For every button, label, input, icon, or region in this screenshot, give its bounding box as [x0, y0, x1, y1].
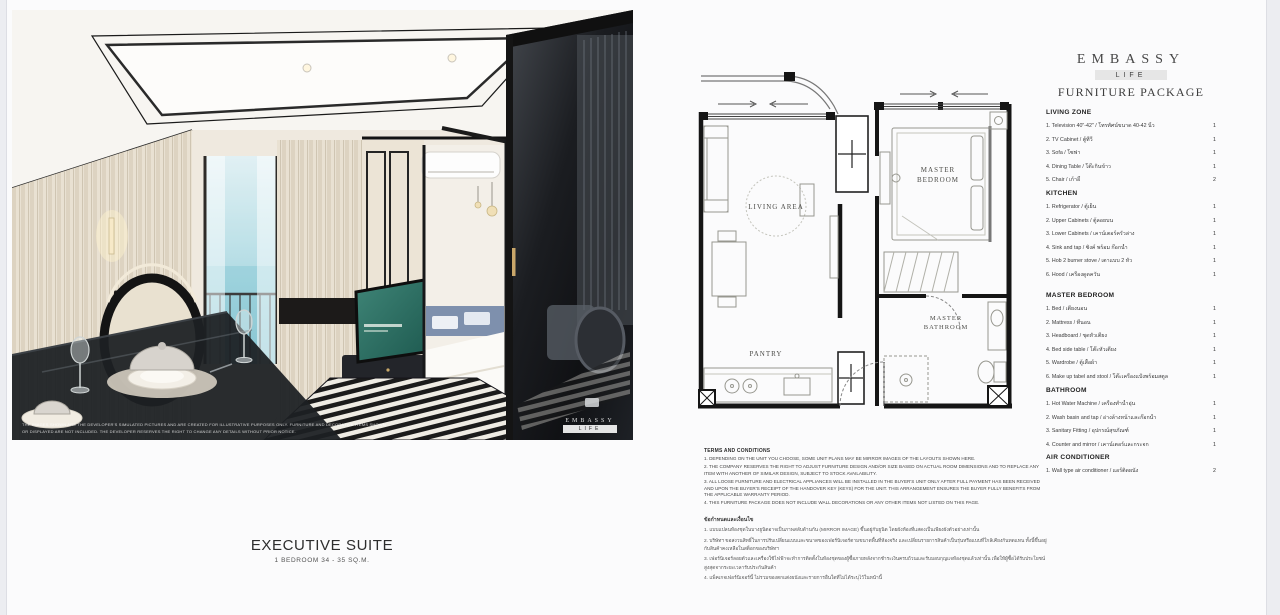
item-label: 3. Headboard / ชุดหัวเตียง [1046, 332, 1206, 340]
item-label: 2. Upper Cabinets / ตู้ลอยบน [1046, 217, 1206, 225]
item-qty: 2 [1206, 177, 1216, 183]
air-conditioner [422, 152, 500, 178]
item-qty: 1 [1206, 123, 1216, 129]
furniture-section-kitchen: KITCHEN 1. Refrigerator / ตู้เย็น1 2. Up… [1046, 190, 1216, 279]
item-qty: 1 [1206, 218, 1216, 224]
furniture-item: 1. Bed / เตียงนอน1 [1046, 305, 1216, 313]
furniture-item: 3. Headboard / ชุดหัวเตียง1 [1046, 332, 1216, 340]
item-qty: 1 [1206, 401, 1216, 407]
terms-th-line: 3. เฟอร์นิเจอร์ลอยตัวและเครื่องใช้ไฟฟ้าจ… [704, 556, 1050, 572]
section-title: LIVING ZONE [1046, 109, 1216, 116]
terms-th-line: 1. แบบแปลนห้องชุดในบางยูนิตอาจเป็นภาพสลั… [704, 527, 1050, 535]
section-title: MASTER BEDROOM [1046, 292, 1216, 299]
furniture-item: 4. Counter and mirror / เคาน์เตอร์และกระ… [1046, 441, 1216, 449]
item-qty: 1 [1206, 245, 1216, 251]
plan-label-bedroom-1: MASTER [921, 166, 955, 174]
terms-en-line: 2. THE COMPANY RESERVES THE RIGHT TO ADJ… [704, 464, 1050, 478]
brochure-page: THE IMAGES SHOWN ARE THE DEVELOPER'S SIM… [0, 0, 1280, 615]
furniture-section-air-conditioner: AIR CONDITIONER 1. Wall type air conditi… [1046, 454, 1216, 475]
furniture-item: 1. Television 40"-42" / โทรทัศน์ขนาด 40-… [1046, 122, 1216, 130]
floor-plan-render: LIVING AREA MASTER BEDROOM PANTRY MASTER… [688, 56, 1022, 432]
plan-window-arrows [718, 91, 988, 107]
package-title: FURNITURE PACKAGE [1046, 85, 1216, 100]
item-qty: 1 [1206, 374, 1216, 380]
item-label: 4. Sink and tap / ซิงค์ พร้อม ก๊อกน้ำ [1046, 244, 1206, 252]
furniture-item: 5. Hob 2 burner stove / เตาแบบ 2 หัว1 [1046, 257, 1216, 265]
item-label: 2. Wash basin and tap / อ่างล้างหน้าและก… [1046, 414, 1206, 422]
reflected-blind-slats [584, 31, 626, 310]
item-label: 5. Wardrobe / ตู้เสื้อผ้า [1046, 359, 1206, 367]
item-qty: 1 [1206, 428, 1216, 434]
plan-label-bedroom-2: BEDROOM [917, 176, 959, 184]
photo-brand-logo: EMBASSY LIFE [557, 418, 623, 433]
item-label: 1. Wall type air conditioner / แอร์ติดผน… [1046, 467, 1206, 475]
plan-label-pantry: PANTRY [750, 350, 783, 358]
item-label: 2. Mattress / ที่นอน [1046, 319, 1206, 327]
terms-en-line: 3. ALL LOOSE FURNITURE AND ELECTRICAL AP… [704, 479, 1050, 500]
furniture-item: 5. Chair / เก้าอี้2 [1046, 176, 1216, 184]
brand-name: EMBASSY [1046, 52, 1216, 68]
furniture-item: 4. Sink and tap / ซิงค์ พร้อม ก๊อกน้ำ1 [1046, 244, 1216, 252]
item-label: 5. Chair / เก้าอี้ [1046, 176, 1206, 184]
furniture-item: 6. Make up tabel and stool / โต๊ะเครื่อง… [1046, 373, 1216, 381]
plan-living-furniture [704, 126, 838, 307]
plan-balcony [701, 72, 838, 114]
furniture-item: 1. Wall type air conditioner / แอร์ติดผน… [1046, 467, 1216, 475]
plan-wardrobe [884, 252, 958, 292]
item-label: 3. Lower Cabinets / เคาน์เตอร์ครัวล่าง [1046, 230, 1206, 238]
suite-subtitle: 1 BEDROOM 34 - 35 SQ.M. [172, 557, 472, 564]
terms-and-conditions-th: ข้อกำหนดและเงื่อนไข 1. แบบแปลนห้องชุดในบ… [704, 516, 1050, 586]
suite-photo: THE IMAGES SHOWN ARE THE DEVELOPER'S SIM… [12, 10, 633, 440]
item-label: 2. TV Cabinet / ตู้ทีวี [1046, 136, 1206, 144]
furniture-item: 4. Bed side table / โต๊ะหัวเตียง1 [1046, 346, 1216, 354]
brand-sub: LIFE [1095, 70, 1167, 80]
terms-and-conditions-en: TERMS AND CONDITIONS 1. DEPENDING ON THE… [704, 448, 1050, 508]
terms-en-line: 4. THIS FURNITURE PACKAGE DOES NOT INCLU… [704, 500, 1050, 507]
item-qty: 2 [1206, 468, 1216, 474]
plan-kitchen-counter [704, 368, 832, 402]
furniture-item: 5. Wardrobe / ตู้เสื้อผ้า1 [1046, 359, 1216, 367]
item-qty: 1 [1206, 333, 1216, 339]
item-label: 1. Hot Water Machine / เครื่องทำน้ำอุ่น [1046, 400, 1206, 408]
terms-th-title: ข้อกำหนดและเงื่อนไข [704, 516, 1050, 524]
item-qty: 1 [1206, 204, 1216, 210]
section-title: AIR CONDITIONER [1046, 454, 1216, 461]
viewer-left-edge [0, 0, 7, 615]
item-qty: 1 [1206, 306, 1216, 312]
item-label: 3. Sofa / โซฟา [1046, 149, 1206, 157]
wall-sconce [96, 210, 128, 262]
glass-partition [506, 10, 633, 440]
furniture-package-list: EMBASSY LIFE FURNITURE PACKAGE LIVING ZO… [1046, 52, 1216, 481]
item-label: 1. Television 40"-42" / โทรทัศน์ขนาด 40-… [1046, 122, 1206, 130]
item-label: 6. Hood / เครื่องดูดควัน [1046, 271, 1206, 279]
plan-label-living: LIVING AREA [748, 203, 804, 211]
curtain-tie-band-right [279, 298, 360, 324]
furniture-section-bathroom: BATHROOM 1. Hot Water Machine / เครื่องท… [1046, 387, 1216, 449]
furniture-section-living-zone: LIVING ZONE 1. Television 40"-42" / โทรท… [1046, 109, 1216, 184]
plan-label-bathroom-1: MASTER [930, 315, 962, 322]
item-label: 5. Hob 2 burner stove / เตาแบบ 2 หัว [1046, 257, 1206, 265]
door-handle [512, 248, 516, 276]
item-qty: 1 [1206, 272, 1216, 278]
item-qty: 1 [1206, 442, 1216, 448]
item-qty: 1 [1206, 258, 1216, 264]
furniture-item: 1. Refrigerator / ตู้เย็น1 [1046, 203, 1216, 211]
photo-disclaimer: THE IMAGES SHOWN ARE THE DEVELOPER'S SIM… [22, 422, 452, 435]
suite-title: EXECUTIVE SUITE [172, 537, 472, 554]
furniture-item: 6. Hood / เครื่องดูดควัน1 [1046, 271, 1216, 279]
section-title: KITCHEN [1046, 190, 1216, 197]
photo-disclaimer-line2: OR DISPLAYED ARE NOT INCLUDED. THE DEVEL… [22, 429, 452, 435]
brand-logo: EMBASSY LIFE FURNITURE PACKAGE [1046, 52, 1216, 100]
suite-photo-render [12, 10, 633, 440]
plan-label-bathroom-2: BATHROOM [924, 324, 968, 331]
television [356, 280, 426, 362]
item-label: 4. Dining Table / โต๊ะกินข้าว [1046, 163, 1206, 171]
item-label: 3. Sanitary Fitting / อุปกรณ์สุขภัณฑ์ [1046, 427, 1206, 435]
item-qty: 1 [1206, 150, 1216, 156]
terms-en-title: TERMS AND CONDITIONS [704, 448, 1050, 454]
item-qty: 1 [1206, 231, 1216, 237]
furniture-section-master-bedroom: MASTER BEDROOM 1. Bed / เตียงนอน1 2. Mat… [1046, 292, 1216, 381]
item-label: 1. Refrigerator / ตู้เย็น [1046, 203, 1206, 211]
photo-brand-name: EMBASSY [557, 418, 623, 424]
item-qty: 1 [1206, 415, 1216, 421]
floor-plan: LIVING AREA MASTER BEDROOM PANTRY MASTER… [688, 56, 1022, 432]
viewer-right-edge [1266, 0, 1280, 615]
item-qty: 1 [1206, 137, 1216, 143]
terms-th-line: 2. บริษัทฯ ขอสงวนสิทธิ์ในการปรับเปลี่ยนแ… [704, 538, 1050, 554]
photo-brand-sub: LIFE [563, 425, 617, 433]
item-qty: 1 [1206, 320, 1216, 326]
furniture-item: 3. Lower Cabinets / เคาน์เตอร์ครัวล่าง1 [1046, 230, 1216, 238]
terms-th-line: 4. แพ็คเกจเฟอร์นิเจอร์นี้ ไม่รวมของตกแต่… [704, 575, 1050, 583]
item-label: 4. Bed side table / โต๊ะหัวเตียง [1046, 346, 1206, 354]
furniture-item: 2. Wash basin and tap / อ่างล้างหน้าและก… [1046, 414, 1216, 422]
item-label: 6. Make up tabel and stool / โต๊ะเครื่อง… [1046, 373, 1206, 381]
suite-caption: EXECUTIVE SUITE 1 BEDROOM 34 - 35 SQ.M. [172, 537, 472, 564]
terms-en-line: 1. DEPENDING ON THE UNIT YOU CHOOSE, SOM… [704, 456, 1050, 463]
furniture-item: 3. Sanitary Fitting / อุปกรณ์สุขภัณฑ์1 [1046, 427, 1216, 435]
section-title: BATHROOM [1046, 387, 1216, 394]
furniture-item: 3. Sofa / โซฟา1 [1046, 149, 1216, 157]
item-label: 1. Bed / เตียงนอน [1046, 305, 1206, 313]
furniture-item: 4. Dining Table / โต๊ะกินข้าว1 [1046, 163, 1216, 171]
furniture-item: 2. Mattress / ที่นอน1 [1046, 319, 1216, 327]
furniture-item: 1. Hot Water Machine / เครื่องทำน้ำอุ่น1 [1046, 400, 1216, 408]
item-label: 4. Counter and mirror / เคาน์เตอร์และกระ… [1046, 441, 1206, 449]
item-qty: 1 [1206, 360, 1216, 366]
item-qty: 1 [1206, 347, 1216, 353]
furniture-item: 2. TV Cabinet / ตู้ทีวี1 [1046, 136, 1216, 144]
item-qty: 1 [1206, 164, 1216, 170]
wall-socket [585, 398, 599, 407]
furniture-item: 2. Upper Cabinets / ตู้ลอยบน1 [1046, 217, 1216, 225]
